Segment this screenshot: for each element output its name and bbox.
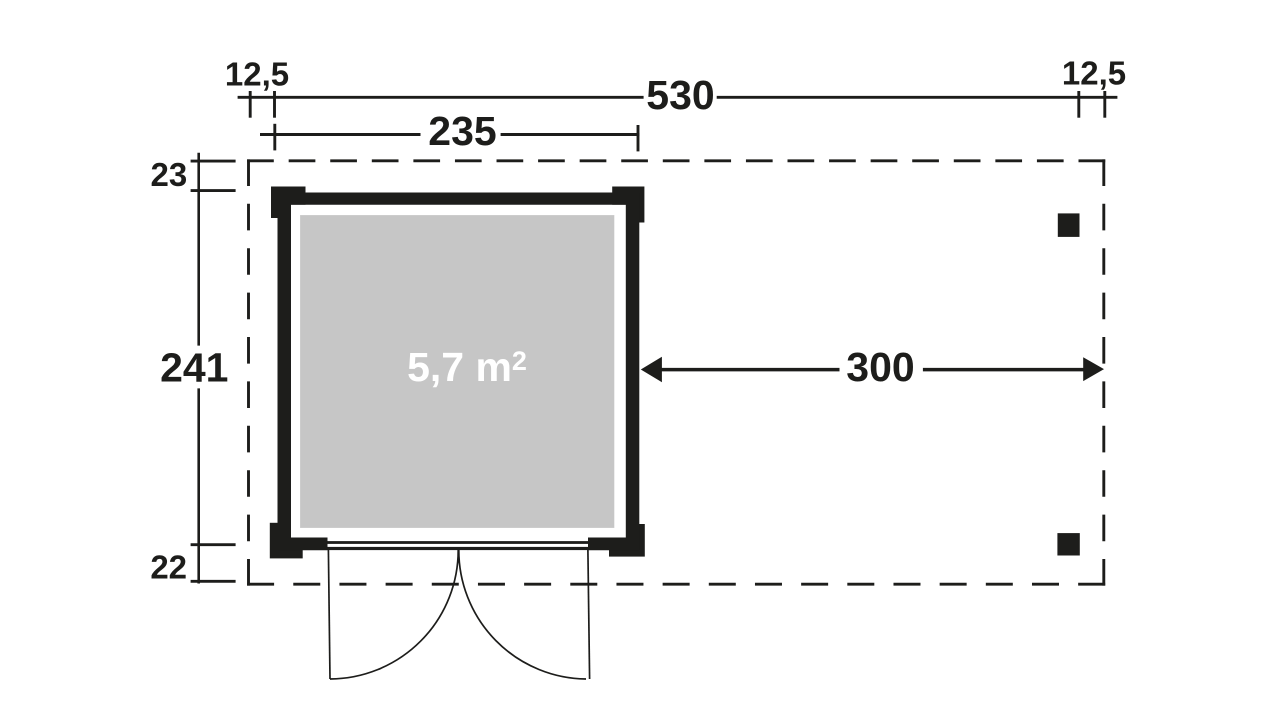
svg-text:12,5: 12,5 bbox=[1062, 55, 1126, 92]
svg-text:23: 23 bbox=[151, 156, 188, 193]
svg-text:300: 300 bbox=[846, 344, 914, 390]
svg-text:22: 22 bbox=[150, 549, 187, 586]
svg-text:241: 241 bbox=[160, 345, 228, 391]
svg-text:5,7 m2: 5,7 m2 bbox=[407, 344, 527, 390]
svg-text:530: 530 bbox=[646, 72, 714, 118]
svg-text:12,5: 12,5 bbox=[225, 56, 289, 93]
svg-text:235: 235 bbox=[428, 108, 496, 154]
